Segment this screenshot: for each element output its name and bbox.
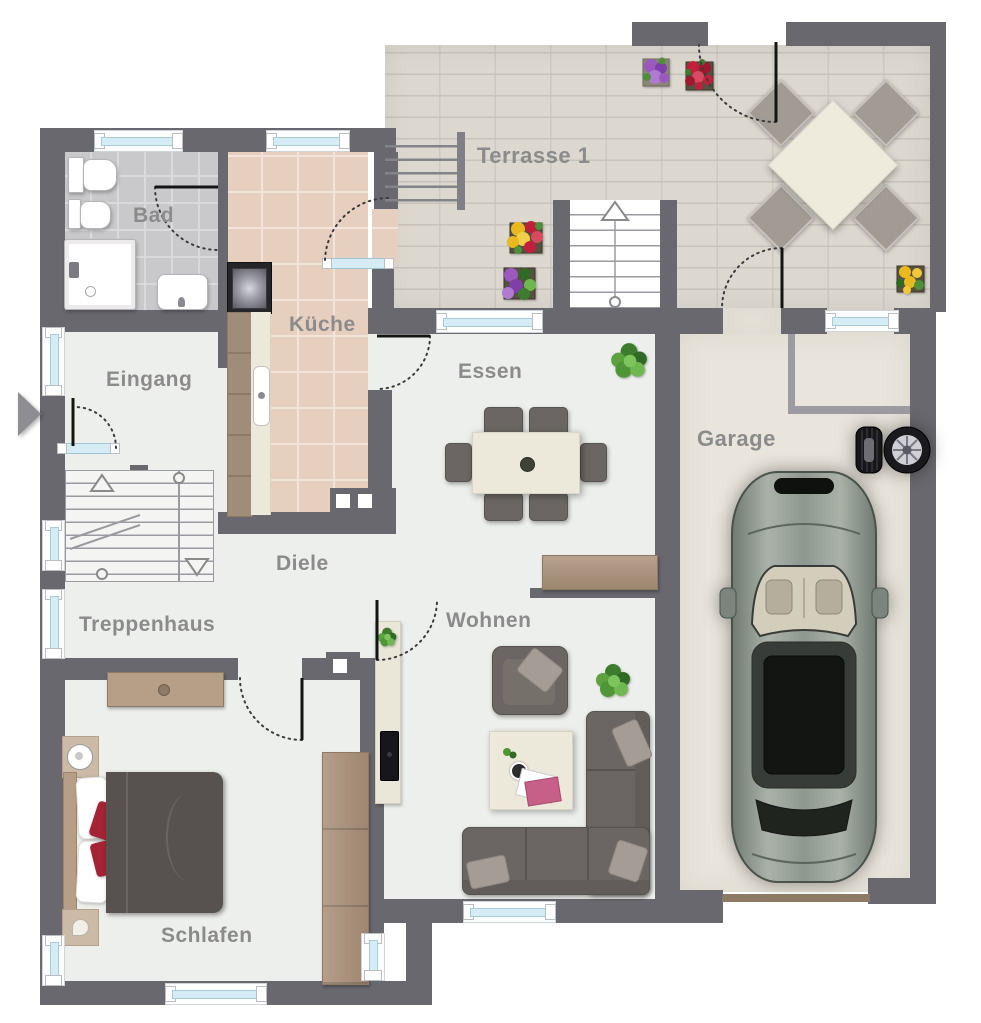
- tv: [380, 731, 399, 781]
- wall: [894, 308, 936, 334]
- terrace-stairs-rail: [457, 132, 465, 210]
- dining-chair: [484, 492, 523, 521]
- kueche-door-patch: [372, 209, 398, 263]
- staircase: [65, 470, 214, 582]
- wall: [930, 22, 946, 312]
- window: [436, 310, 543, 333]
- nightstand: [62, 909, 99, 946]
- room-label-diele: Diele: [276, 552, 329, 576]
- schlafen-door-patch: [238, 658, 302, 680]
- faucet-icon: [258, 392, 265, 399]
- coffee-table: [489, 731, 573, 810]
- window: [42, 520, 65, 571]
- bedside-lamp-icon: [67, 744, 93, 770]
- table-centerpiece-icon: [520, 457, 535, 472]
- floor-plan: Bad Küche Eingang Terrasse 1 Essen Garag…: [0, 0, 981, 1023]
- window: [42, 589, 65, 659]
- sideboard-knob: [158, 684, 170, 696]
- room-label-bad: Bad: [133, 204, 174, 228]
- dining-chair: [445, 443, 472, 482]
- room-label-wohnen: Wohnen: [446, 609, 531, 633]
- plant-icon: [376, 626, 398, 648]
- flower-pot-roses-icon: [681, 55, 718, 96]
- wall: [910, 308, 936, 904]
- spare-wheels-icon: [854, 423, 934, 477]
- window: [266, 130, 350, 152]
- wall: [655, 308, 723, 334]
- wall-shaft: [333, 659, 347, 673]
- window: [361, 933, 385, 981]
- wall: [632, 22, 708, 46]
- toilet-bowl: [83, 159, 117, 191]
- wall: [372, 263, 394, 310]
- shower-head-icon: [69, 262, 79, 278]
- dining-sideboard: [542, 555, 658, 590]
- flower-pot-mixed-icon: [503, 215, 549, 260]
- toilet-tank: [68, 157, 84, 193]
- dining-chair: [580, 443, 607, 482]
- window: [94, 130, 183, 152]
- wall-shaft: [336, 494, 350, 508]
- front-door-glass: [58, 443, 119, 454]
- flower-pot-purple-icon: [638, 52, 674, 92]
- room-label-terrasse: Terrasse 1: [477, 143, 590, 169]
- window: [42, 327, 65, 396]
- room-label-schlafen: Schlafen: [161, 924, 253, 948]
- terrace-door-glass: [323, 258, 393, 269]
- garage-door-patch: [722, 308, 781, 334]
- wall: [655, 890, 723, 923]
- garage-door: [722, 894, 870, 902]
- magazine: [524, 776, 561, 806]
- entrance-arrow-icon: [18, 392, 41, 436]
- window: [165, 983, 267, 1005]
- kitchen-cabinets: [227, 312, 253, 517]
- window: [463, 901, 556, 923]
- window: [42, 935, 65, 986]
- shower: [64, 239, 136, 310]
- wall-shaft: [358, 494, 372, 508]
- wall: [368, 390, 392, 490]
- sprig-icon: [502, 746, 518, 762]
- flower-pot-pansies-icon: [498, 261, 542, 307]
- washbasin-bad: [157, 274, 208, 310]
- shower-drain: [85, 286, 96, 297]
- dining-table: [472, 432, 580, 494]
- wall: [553, 200, 570, 310]
- oven-door: [232, 268, 267, 309]
- stove: [227, 262, 272, 314]
- room-label-essen: Essen: [458, 360, 522, 384]
- room-label-treppenhaus: Treppenhaus: [79, 613, 215, 637]
- decor-shell-icon: [72, 919, 89, 936]
- wall: [40, 310, 218, 332]
- plant-icon: [591, 661, 635, 701]
- terrace-exterior-staircase: [570, 200, 660, 308]
- car-icon: [718, 462, 890, 892]
- room-label-eingang: Eingang: [106, 368, 192, 392]
- kitchen-sink: [253, 366, 270, 426]
- dining-chair: [529, 492, 568, 521]
- room-label-garage: Garage: [697, 426, 776, 452]
- wall: [406, 923, 432, 983]
- wall: [655, 332, 680, 892]
- room-label-kueche: Küche: [289, 313, 356, 337]
- window: [825, 310, 899, 332]
- terrace-garden-stairs: [385, 134, 457, 208]
- garage-niche-wall: [788, 332, 795, 414]
- garage-niche-wall: [788, 406, 911, 414]
- wall: [786, 22, 946, 46]
- bed-blanket: [106, 772, 223, 913]
- flower-pot-sunflower-icon: [891, 260, 929, 297]
- plant-icon: [608, 338, 650, 384]
- wall: [781, 308, 827, 334]
- faucet-icon: [178, 297, 185, 307]
- bidet-bowl: [80, 201, 111, 229]
- wall: [660, 200, 677, 310]
